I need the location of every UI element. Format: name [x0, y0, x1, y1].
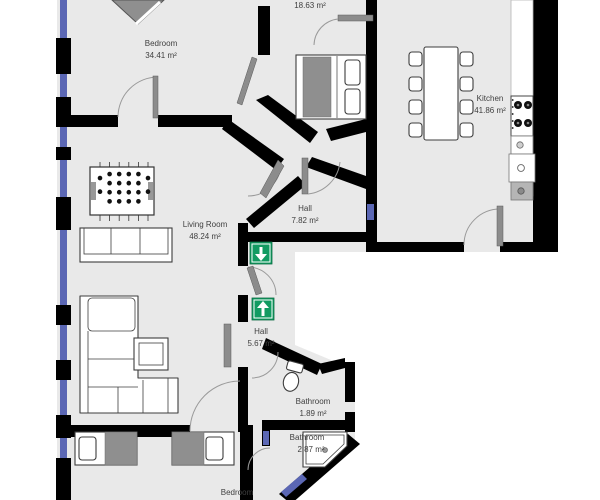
room-name: Hall: [254, 327, 268, 336]
double-bed: [296, 55, 366, 119]
room-area: 18.63 m²: [294, 1, 326, 10]
room-area: 7.82 m²: [291, 216, 318, 225]
dining-table: [424, 47, 458, 140]
door-leaf: [153, 76, 158, 118]
door-leaf: [302, 158, 308, 194]
floorplan-svg: Bedroom 34.41 m² 18.63 m² Kitchen 41.86 …: [0, 0, 600, 500]
window-left-2: [60, 74, 67, 97]
coffee-table: [134, 338, 168, 370]
room-area: 2.87 m²: [297, 445, 324, 454]
room-name: Bathroom: [290, 433, 325, 442]
window-hall-kitchen: [367, 204, 374, 220]
room-area: 34.41 m²: [145, 51, 177, 60]
window-left-5: [60, 230, 67, 305]
room-name: Bathroom: [296, 397, 331, 406]
foosball-table: [90, 162, 154, 221]
floorplan-canvas: Bedroom 34.41 m² 18.63 m² Kitchen 41.86 …: [0, 0, 600, 500]
washing-machine: [511, 182, 533, 200]
window-left-4: [60, 160, 67, 197]
door-leaf: [497, 206, 503, 246]
entrance-arrow-down-icon: [250, 242, 272, 264]
entrance-arrow-up-icon: [252, 298, 274, 320]
sideboard: [80, 228, 172, 262]
room-area: 1.89 m²: [299, 409, 326, 418]
room-area: 41.86 m²: [474, 106, 506, 115]
room-area: 5.67 m²: [247, 339, 274, 348]
room-label-bedroom-lower: Bedroom: [221, 488, 254, 497]
room-name: Bedroom: [221, 488, 254, 497]
door-leaf: [338, 15, 373, 21]
stove: [511, 96, 533, 136]
room-name: Hall: [298, 204, 312, 213]
single-bed-left: [75, 432, 137, 465]
room-label-room-1863: 18.63 m²: [294, 1, 326, 10]
door-leaf: [224, 324, 231, 367]
dishwasher: [509, 154, 535, 182]
room-name: Kitchen: [477, 94, 504, 103]
room-name: Living Room: [183, 220, 228, 229]
window-left-1: [60, 0, 67, 38]
single-bed-right: [172, 432, 234, 465]
room-area: 48.24 m²: [189, 232, 221, 241]
window-left-8: [60, 438, 67, 458]
window-left-3: [60, 127, 67, 147]
window-bathroom-lower: [263, 431, 269, 445]
window-left-7: [60, 380, 67, 415]
room-name: Bedroom: [145, 39, 178, 48]
window-left-6: [60, 325, 67, 360]
kitchen-counter: [509, 0, 535, 200]
kitchen-sink: [511, 136, 533, 154]
